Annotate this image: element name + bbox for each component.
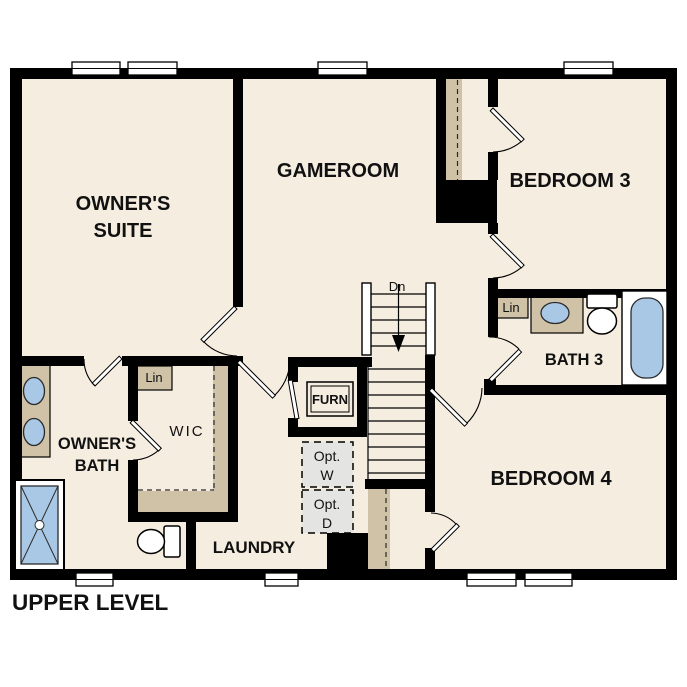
window-owners-bath xyxy=(76,573,113,586)
wall-wic-south xyxy=(128,512,238,522)
bedroom3-closet-shelf xyxy=(446,79,462,180)
wall-wic-east xyxy=(228,366,238,512)
bath3-linen-label: Lin xyxy=(502,300,519,315)
owners-bath-label-1: OWNER'S xyxy=(58,435,136,453)
wall-toilet-nook-east xyxy=(186,522,196,569)
owners-bath-label-2: BATH xyxy=(75,457,120,475)
window-gameroom xyxy=(318,62,367,75)
shower-fixture xyxy=(15,480,64,570)
window-laundry xyxy=(265,573,298,586)
wall-bath-wic-divider-lower xyxy=(128,460,138,512)
window-bedroom4-2 xyxy=(525,573,572,586)
window-suite-1 xyxy=(72,62,120,75)
wall-furnace-east xyxy=(357,367,367,427)
understair-closet-shelf xyxy=(368,489,390,569)
bath3-sink xyxy=(541,303,569,324)
wic-shelf-south xyxy=(138,491,228,512)
wall-suite-south-east xyxy=(122,356,243,366)
owners-bath-sink-1 xyxy=(24,378,45,405)
bedroom3-label: BEDROOM 3 xyxy=(509,170,630,192)
wall-hall-south xyxy=(288,357,372,367)
stair-rail-right xyxy=(426,283,435,355)
stair-rail-left xyxy=(362,283,371,355)
window-bedroom3 xyxy=(564,62,613,75)
wall-bath-wic-divider-upper xyxy=(128,366,138,421)
gameroom-label: GAMEROOM xyxy=(277,160,399,182)
floor-plan-page: Dn xyxy=(0,0,687,687)
optional-washer-label-1: Opt. xyxy=(314,448,340,464)
wall-bedroom3-west-4 xyxy=(488,278,498,337)
wall-gameroom-east xyxy=(436,79,446,180)
bath3-label: BATH 3 xyxy=(545,351,603,369)
wall-bedroom3-west-2 xyxy=(488,152,498,180)
wic-label: WIC xyxy=(169,423,204,440)
furnace-label: FURN xyxy=(312,392,348,407)
optional-dryer-label-1: Opt. xyxy=(314,496,340,512)
wall-bath3-south xyxy=(484,385,677,395)
wall-suite-south-west xyxy=(22,356,84,366)
wall-bedroom3-west-3 xyxy=(488,223,498,234)
window-suite-2 xyxy=(128,62,177,75)
wall-bedroom3-west-1 xyxy=(488,79,498,107)
bath3-bathtub xyxy=(622,291,667,385)
wall-stair-bottom xyxy=(365,479,434,489)
laundry-label: LAUNDRY xyxy=(213,538,296,557)
stairs-down-label: Dn xyxy=(389,279,406,294)
bedroom4-label: BEDROOM 4 xyxy=(490,468,612,490)
optional-washer-label-2: W xyxy=(320,467,334,483)
wall-furnace-south xyxy=(288,427,367,437)
window-bedroom4-1 xyxy=(467,573,516,586)
owners-suite-label-1: OWNER'S xyxy=(76,193,171,215)
owners-suite-label-2: SUITE xyxy=(94,220,153,242)
wall-laundry-chase xyxy=(327,533,368,569)
wic-linen-label: Lin xyxy=(145,370,162,385)
wic-shelf-east xyxy=(213,366,228,512)
wall-suite-east xyxy=(233,79,243,307)
page-title: UPPER LEVEL xyxy=(12,590,169,615)
chase-block xyxy=(436,180,497,223)
upper-level-floor-plan: Dn xyxy=(0,0,687,687)
owners-bath-sink-2 xyxy=(24,419,45,446)
optional-dryer-label-2: D xyxy=(322,515,332,531)
bath3-toilet xyxy=(587,294,617,334)
